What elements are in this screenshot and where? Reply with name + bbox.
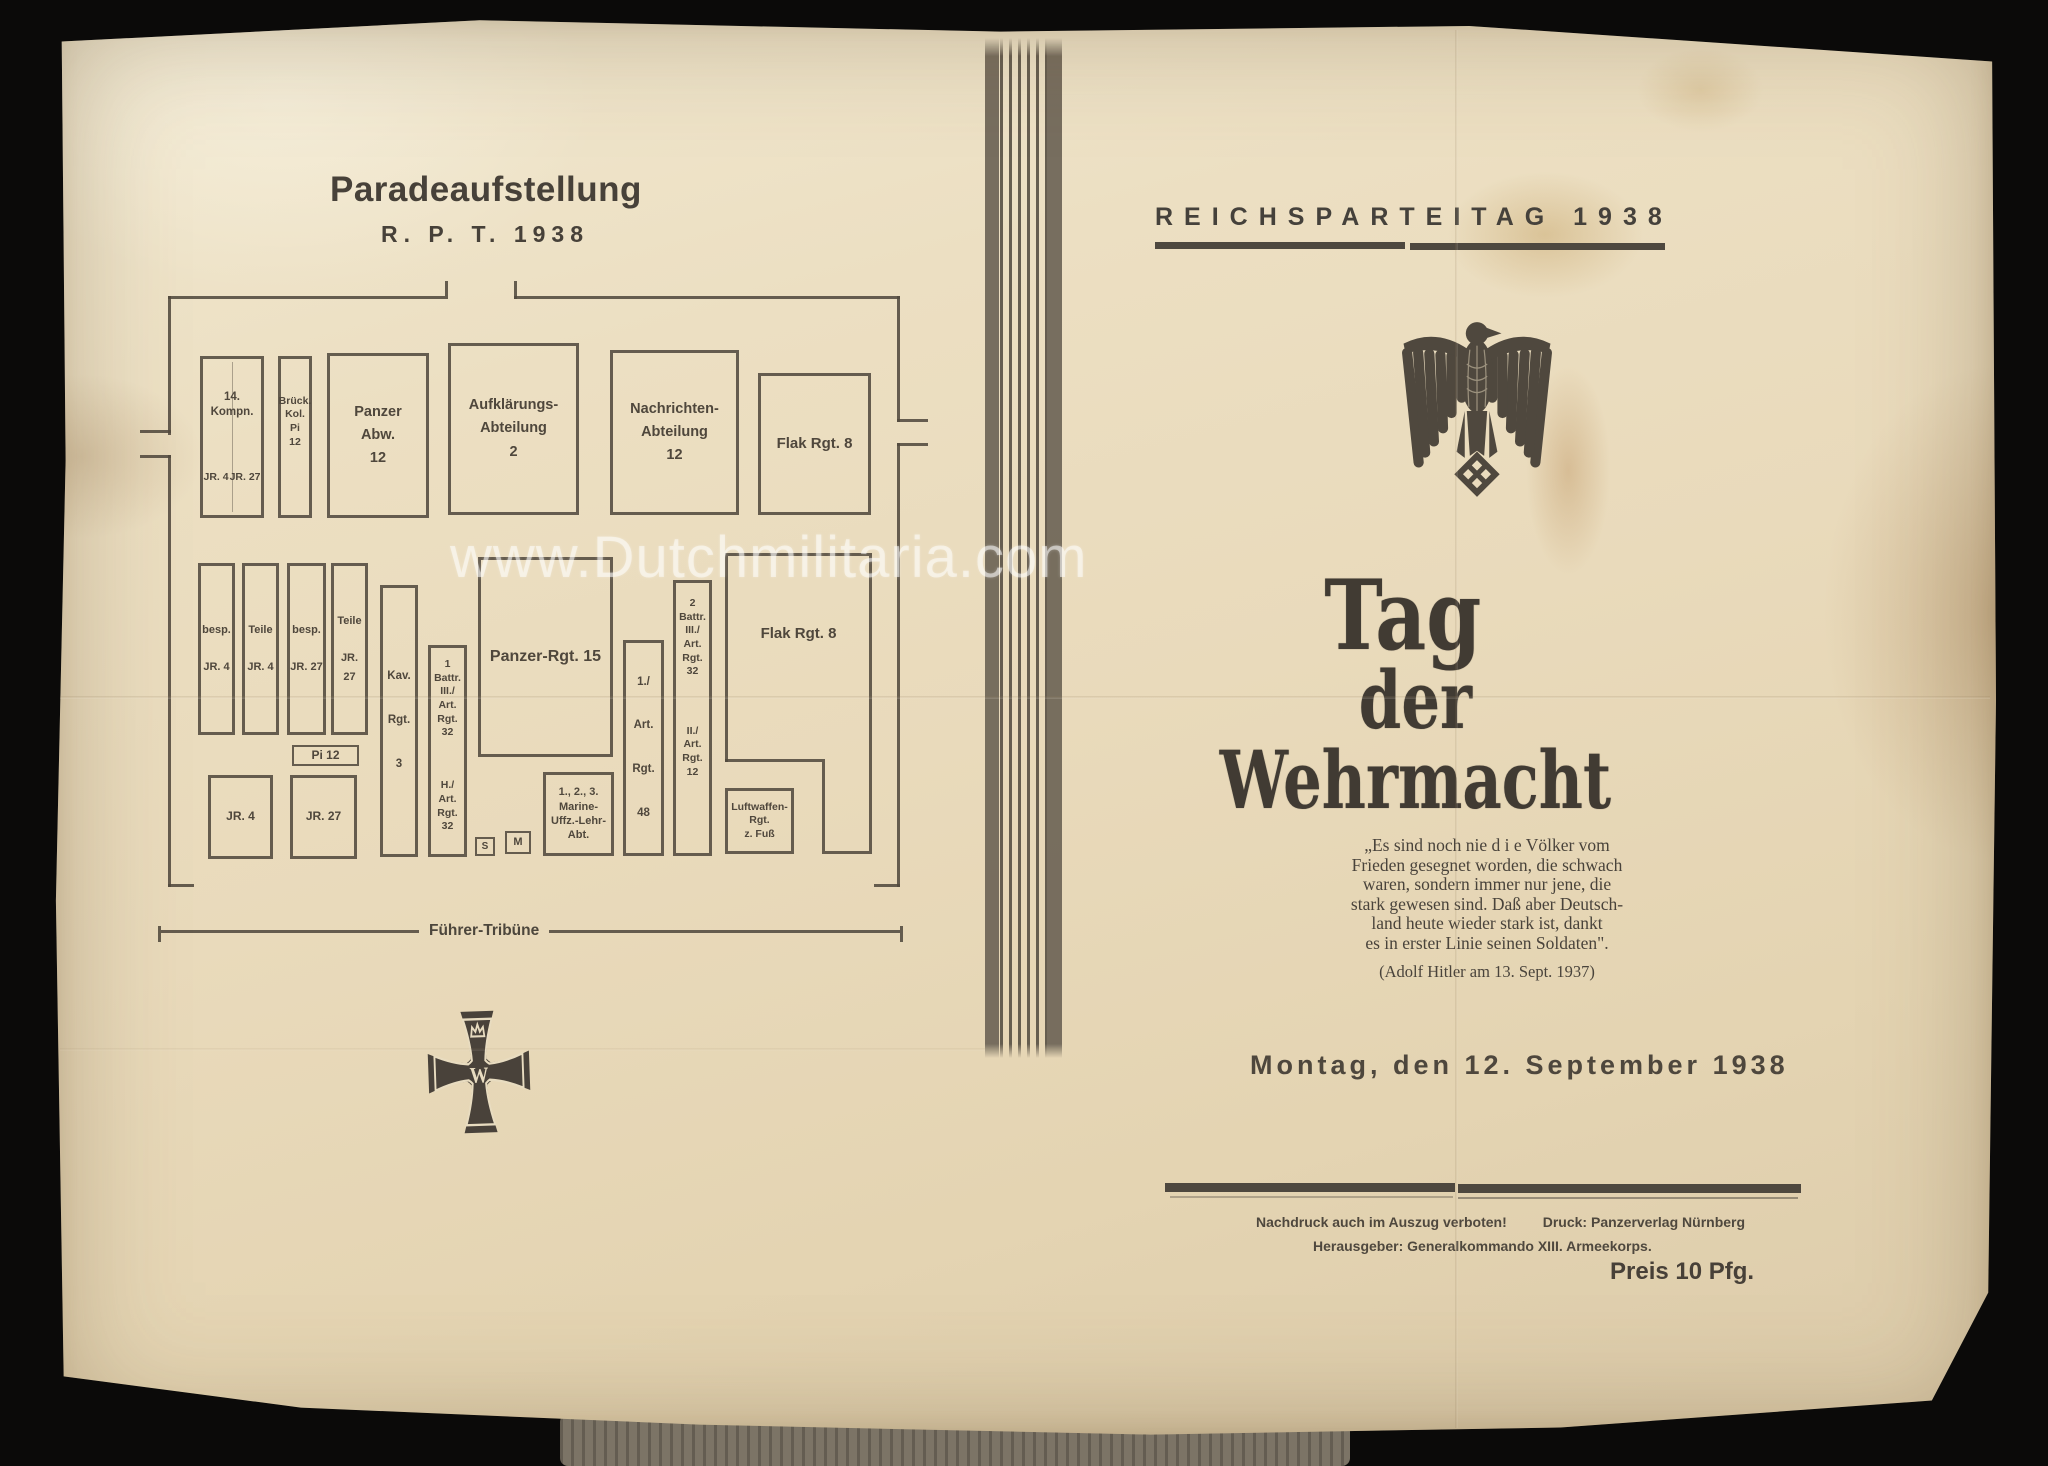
box-label: 1./ Art. Rgt. 48	[632, 672, 654, 825]
box-label: Kav. Rgt. 3	[387, 666, 410, 775]
diagram-border-tick	[874, 884, 900, 887]
diagram-border-tick	[897, 419, 928, 422]
tribune-end-tick	[158, 926, 161, 942]
tribune-end-tick	[900, 926, 903, 942]
photo-stage: Paradeaufstellung R. P. T. 1938 14. Komp…	[0, 0, 2048, 1466]
box-label: 2 Battr. III./ Art. Rgt. 32	[679, 597, 706, 679]
box-label: 1., 2., 3. Marine- Uffz.-Lehr- Abt.	[551, 785, 606, 842]
diagram-border-line	[725, 759, 825, 762]
diagram-box-flak-rgt-8-bottom: Flak Rgt. 8	[725, 553, 872, 762]
box-label: M	[513, 835, 522, 849]
diagram-box-kav-rgt-3: Kav. Rgt. 3	[380, 585, 418, 857]
diagram-box-nachrichten-abteilung-12: Nachrichten- Abteilung 12	[610, 350, 739, 515]
box-label: Brück. Kol. Pi 12	[279, 395, 312, 450]
box-label: Teile JR. 27	[334, 612, 365, 687]
event-date: Montag, den 12. September 1938	[1250, 1050, 1650, 1081]
quote-attribution: (Adolf Hitler am 13. Sept. 1937)	[1346, 962, 1628, 982]
diagram-box-m: M	[505, 831, 531, 854]
price-label: Preis 10 Pfg.	[1610, 1258, 1754, 1286]
box-label: JR. 27	[306, 809, 341, 825]
box-label: Pi 12	[311, 748, 339, 764]
box-label: Teile JR. 4	[247, 621, 273, 677]
diagram-border-tick	[140, 455, 171, 458]
diagram-border-tick	[168, 884, 194, 887]
diagram-box-art-rgt-48: 1./ Art. Rgt. 48	[623, 640, 664, 856]
diagram-box-panzer-rgt-15: Panzer-Rgt. 15	[478, 557, 613, 757]
tribune-line	[161, 930, 419, 933]
talon-emblem	[1459, 456, 1496, 493]
imprint-line: Nachdruck auch im Auszug verboten! Druck…	[1256, 1214, 1745, 1230]
diagram-box-flak-extension	[822, 762, 872, 854]
box-label: JR. 4	[226, 809, 255, 825]
diagram-box-flak-rgt-8-top: Flak Rgt. 8	[758, 373, 871, 515]
diagram-box-aufklaerungs-abteilung-2: Aufklärungs- Abteilung 2	[448, 343, 579, 515]
parade-title: Paradeaufstellung	[330, 170, 640, 210]
document-content: Paradeaufstellung R. P. T. 1938 14. Komp…	[0, 0, 2048, 1466]
box-label: Panzer-Rgt. 15	[490, 647, 601, 668]
box-label: S	[482, 840, 489, 853]
diagram-box-teile-jr27: Teile JR. 27	[331, 563, 368, 735]
diagram-border-line	[514, 296, 900, 299]
imprint-printer: Druck: Panzerverlag Nürnberg	[1543, 1214, 1745, 1230]
imprint-publisher: Herausgeber: Generalkommando XIII. Armee…	[1313, 1238, 1652, 1254]
box-label: Nachrichten- Abteilung 12	[630, 398, 719, 468]
diagram-box-besp-jr4: besp. JR. 4	[198, 563, 235, 735]
diagram-border-tick	[140, 430, 171, 433]
footer-rule	[1165, 1183, 1455, 1192]
diagram-box-battr1-art-rgt-32: 1 Battr. III./ Art. Rgt. 32 H./ Art. Rgt…	[428, 645, 467, 857]
diagram-box-panzer-abw-12: Panzer Abw. 12	[327, 353, 429, 518]
diagram-box-jr-27: JR. 27	[290, 775, 357, 859]
box-label: Flak Rgt. 8	[761, 624, 837, 644]
box-label-2: II./ Art. Rgt. 12	[682, 725, 702, 780]
diagram-box-jr-4: JR. 4	[208, 775, 273, 859]
cover-title-line2: der Wehrmacht	[1158, 660, 1643, 820]
diagram-box-s: S	[475, 837, 495, 856]
tribune-label: Führer-Tribüne	[419, 922, 549, 940]
eagle-emblem-icon	[1395, 313, 1559, 513]
box-label: Flak Rgt. 8	[777, 434, 853, 454]
tribune-line	[549, 930, 900, 933]
footer-rule	[1458, 1184, 1801, 1193]
footer-rule-thin	[1458, 1197, 1798, 1199]
diagram-box-marine-uffz-lehr-abt: 1., 2., 3. Marine- Uffz.-Lehr- Abt.	[543, 772, 614, 856]
box-label: Aufklärungs- Abteilung 2	[469, 394, 558, 464]
diagram-box-14-kompn: 14. Kompn. JR. 4 JR. 27	[200, 356, 264, 518]
cross-monogram: W	[469, 1064, 489, 1089]
box-sublabel-jr4: JR. 4	[203, 471, 228, 485]
diagram-box-brueck-kol-pi12: Brück. Kol. Pi 12	[278, 356, 312, 518]
diagram-border-tick	[445, 281, 448, 299]
header-underline	[1410, 243, 1665, 250]
diagram-border-line	[168, 296, 445, 299]
box-label: besp. JR. 4	[202, 621, 231, 677]
diagram-border-line	[168, 455, 171, 887]
diagram-box-teile-jr4: Teile JR. 4	[242, 563, 279, 735]
box-label: 1 Battr. III./ Art. Rgt. 32	[434, 658, 461, 740]
diagram-border-line	[897, 296, 900, 422]
diagram-box-luftwaffen-rgt: Luftwaffen- Rgt. z. Fuß	[725, 788, 794, 854]
box-sublabels: JR. 4 JR. 27	[203, 471, 261, 485]
imprint-notice: Nachdruck auch im Auszug verboten!	[1256, 1214, 1507, 1230]
quote-block: „Es sind noch nie d i e Völker vom Fried…	[1346, 836, 1628, 953]
diagram-border-line	[897, 443, 900, 887]
diagram-box-battr2-art-rgt-32: 2 Battr. III./ Art. Rgt. 32 II./ Art. Rg…	[673, 580, 712, 856]
diagram-box-pi-12: Pi 12	[292, 745, 359, 766]
box-divider-line	[232, 362, 233, 512]
diagram-box-besp-jr27: besp. JR. 27	[287, 563, 326, 735]
parade-subtitle: R. P. T. 1938	[330, 221, 640, 248]
box-label-2: H./ Art. Rgt. 32	[437, 779, 457, 834]
footer-rule-thin	[1170, 1196, 1453, 1198]
reichsparteitag-header: REICHSPARTEITAG 1938	[1155, 203, 1665, 232]
diagram-border-tick	[897, 443, 928, 446]
header-underline	[1155, 242, 1405, 249]
box-label: besp. JR. 27	[290, 621, 322, 677]
box-label: Luftwaffen- Rgt. z. Fuß	[731, 801, 788, 842]
box-label: Panzer Abw. 12	[354, 401, 402, 471]
cover-title-line1: Tag	[1305, 568, 1500, 664]
diagram-border-line	[168, 296, 171, 435]
fuehrer-tribuene-line: Führer-Tribüne	[158, 926, 903, 948]
box-sublabel-jr27: JR. 27	[230, 471, 261, 485]
iron-cross-icon: W	[422, 1004, 537, 1140]
